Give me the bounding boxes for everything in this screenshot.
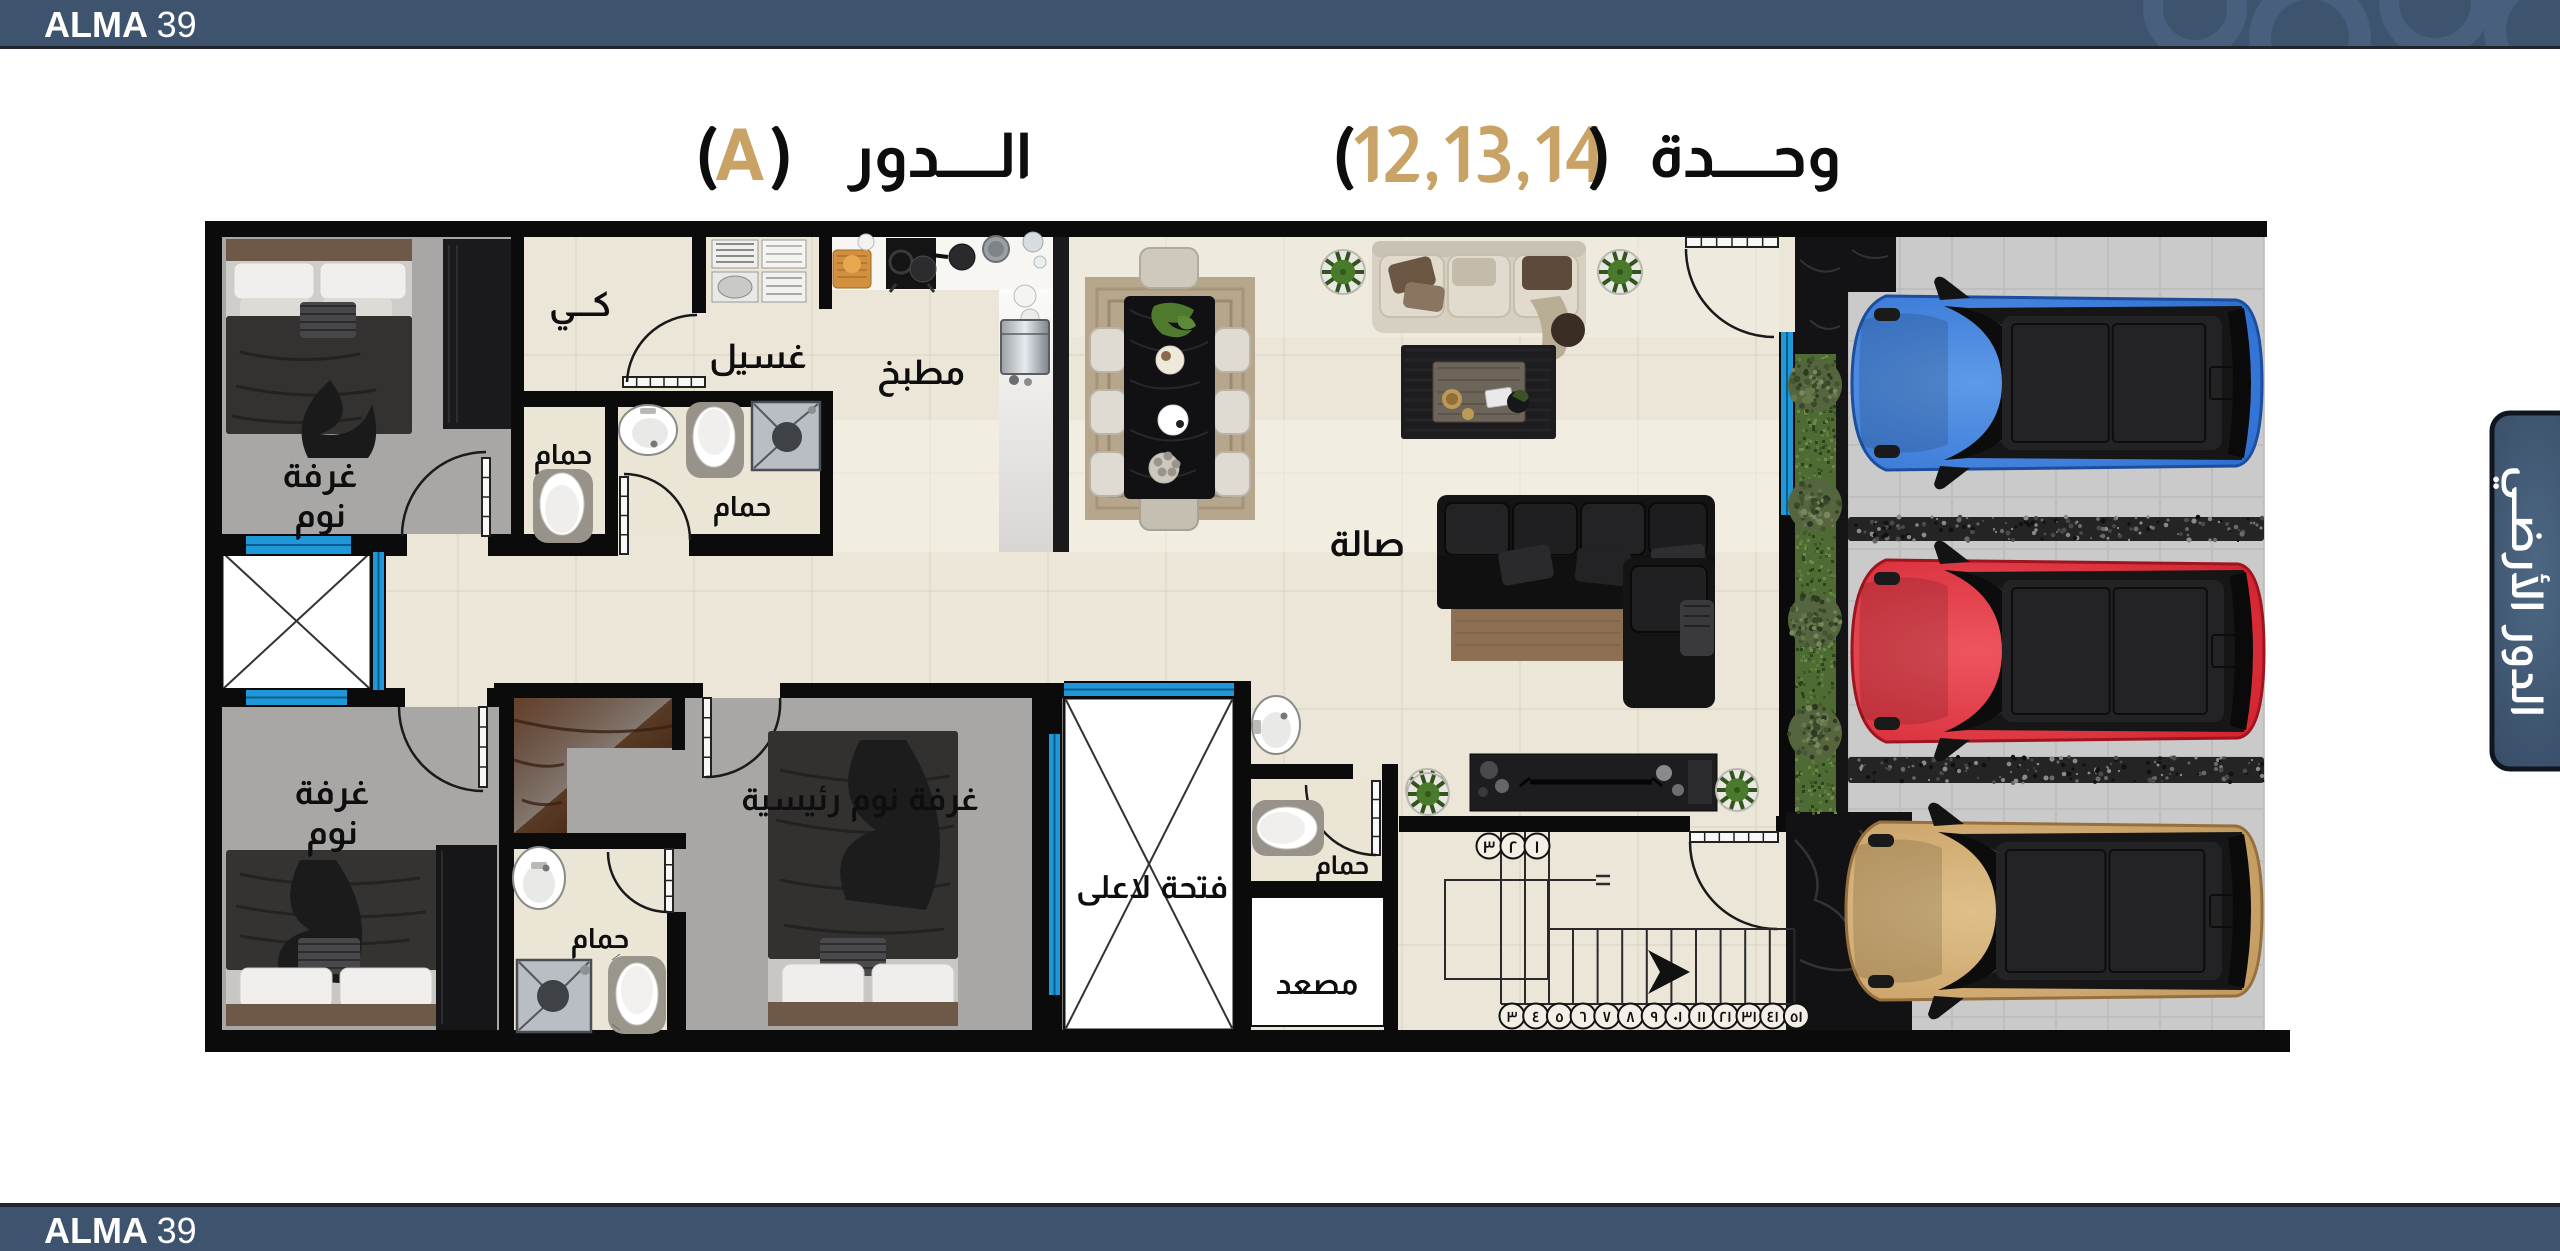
svg-text:ALMA 39: ALMA 39	[44, 4, 197, 45]
svg-text:ALMA 39: ALMA 39	[44, 1210, 197, 1251]
